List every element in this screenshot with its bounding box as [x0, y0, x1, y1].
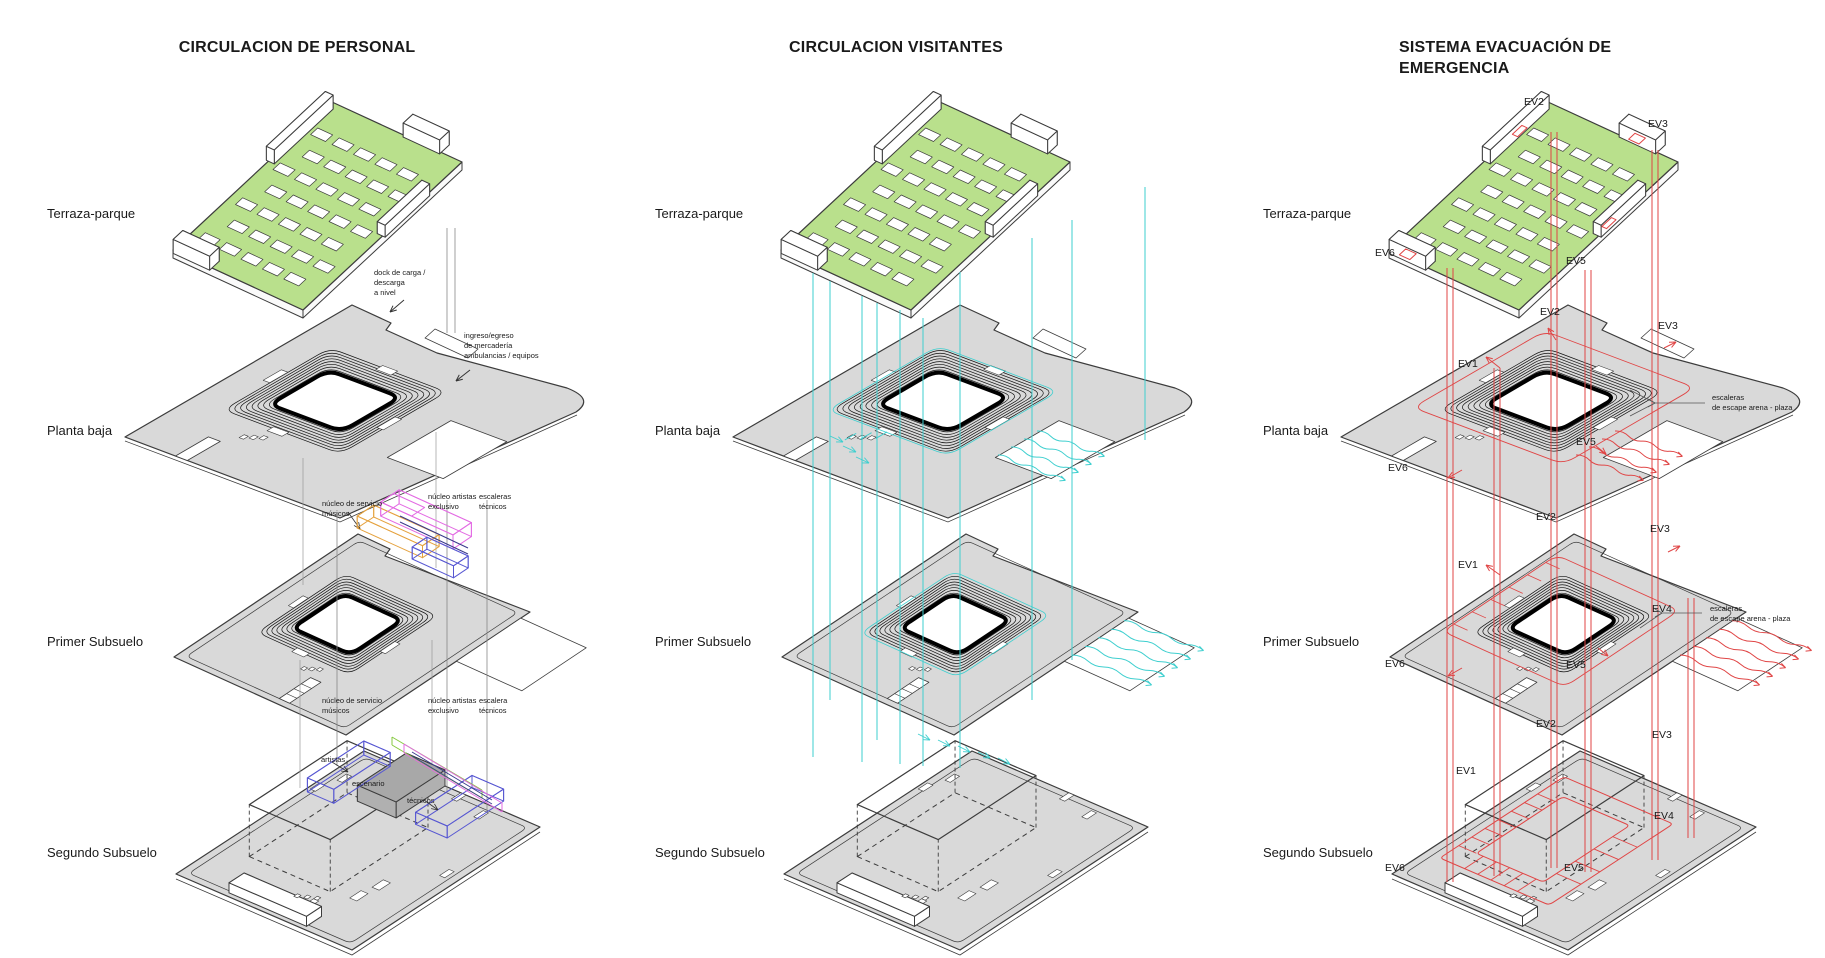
ev-label: EV2: [1536, 718, 1556, 732]
ev-label: EV5: [1566, 659, 1586, 673]
level-label: Segundo Subsuelo: [655, 845, 765, 862]
building-stack-emergencia: [1341, 92, 1802, 956]
level-label: Primer Subsuelo: [655, 634, 751, 651]
ev-label: EV1: [1458, 358, 1478, 372]
ev-label: EV3: [1648, 118, 1668, 132]
ev-label: EV4: [1654, 810, 1674, 824]
level-label: Planta baja: [47, 423, 112, 440]
ev-label: EV5: [1566, 255, 1586, 269]
annotation: núcleo artistas exclusivo: [428, 696, 476, 716]
column-title-visitantes: CIRCULACION VISITANTES: [789, 38, 1003, 59]
building-stack-visitantes: [733, 92, 1194, 956]
ev-label: EV3: [1658, 320, 1678, 334]
annotation: ingreso/egreso de mercadería ambulancias…: [464, 331, 539, 360]
ev-label: EV6: [1375, 247, 1395, 261]
level-label: Terraza-parque: [1263, 206, 1351, 223]
escape-note: escaleras de escape arena - plaza: [1712, 393, 1792, 413]
annotation: escalera técnicos: [479, 696, 507, 716]
annotation: núcleo de servicio músicos: [322, 499, 382, 519]
level-label: Primer Subsuelo: [47, 634, 143, 651]
ev-label: EV1: [1456, 765, 1476, 779]
ev-label: EV4: [1652, 603, 1672, 617]
annotation: artistas: [321, 755, 345, 765]
annotation: escaleras técnicos: [479, 492, 511, 512]
annotation: escenario: [352, 779, 385, 789]
annotation: técnicos: [407, 796, 435, 806]
ev-label: EV6: [1385, 658, 1405, 672]
column-title-emergencia: SISTEMA EVACUACIÓN DE EMERGENCIA: [1399, 38, 1683, 80]
level-label: Primer Subsuelo: [1263, 634, 1359, 651]
exploded-axonometric-sheet: CIRCULACION DE PERSONAL CIRCULACION VISI…: [0, 0, 1825, 958]
axonometric-diagrams: [0, 0, 1825, 958]
ev-label: EV6: [1388, 462, 1408, 476]
level-label: Terraza-parque: [655, 206, 743, 223]
ev-label: EV3: [1650, 523, 1670, 537]
annotation: núcleo artistas exclusivo: [428, 492, 476, 512]
ev-label: EV2: [1536, 511, 1556, 525]
ev-label: EV5: [1564, 862, 1584, 876]
level-label: Segundo Subsuelo: [47, 845, 157, 862]
ev-label: EV2: [1540, 306, 1560, 320]
ev-label: EV3: [1652, 729, 1672, 743]
column-title-personal: CIRCULACION DE PERSONAL: [179, 38, 416, 59]
level-label: Planta baja: [655, 423, 720, 440]
ev-label: EV1: [1458, 559, 1478, 573]
ev-label: EV6: [1385, 862, 1405, 876]
escape-note: escaleras de escape arena - plaza: [1710, 604, 1790, 624]
ev-label: EV5: [1576, 436, 1596, 450]
level-label: Planta baja: [1263, 423, 1328, 440]
annotation: dock de carga / descarga a nivel: [374, 268, 425, 297]
level-label: Terraza-parque: [47, 206, 135, 223]
annotation: núcleo de servicio músicos: [322, 696, 382, 716]
ev-label: EV2: [1524, 96, 1544, 110]
level-label: Segundo Subsuelo: [1263, 845, 1373, 862]
